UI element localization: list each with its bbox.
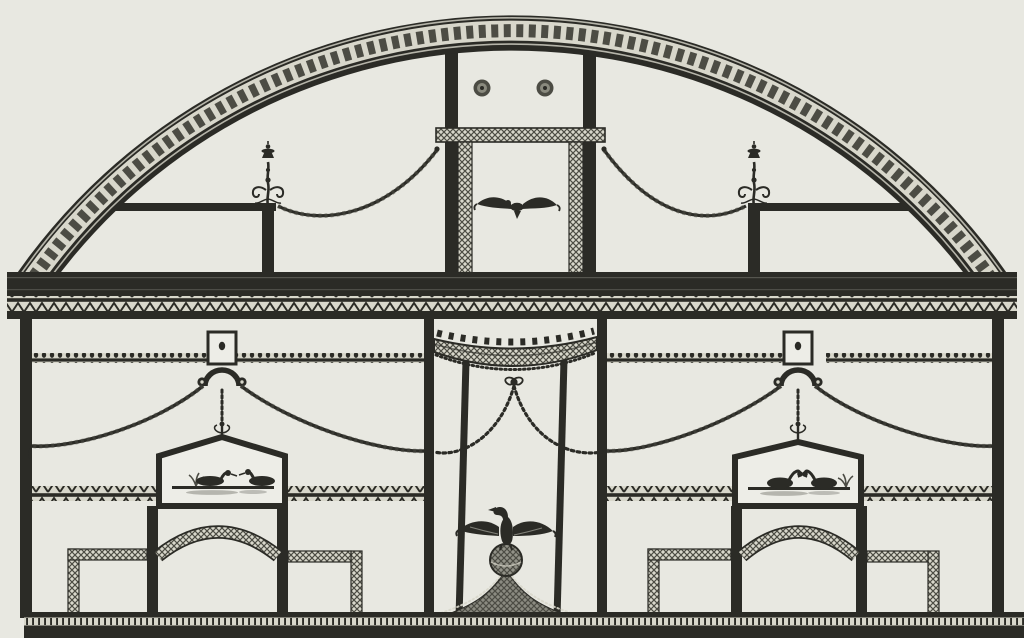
wall-right-edge-post <box>992 319 1004 618</box>
lunette-right-post <box>748 209 760 275</box>
plinth-bead-course <box>24 617 1024 628</box>
lunette-right-rail <box>748 203 912 211</box>
left-panel-right-post <box>277 506 288 618</box>
wall-left-edge-post <box>20 319 32 618</box>
lunette-left-post <box>262 209 274 275</box>
engraving-plate <box>0 0 1024 638</box>
globe <box>490 544 522 576</box>
aedicula-left-post <box>424 319 434 618</box>
plinth-base-line <box>24 612 1024 617</box>
duck-panel <box>159 437 285 506</box>
right-panel-right-post <box>856 506 867 618</box>
right-panel-left-post <box>731 506 742 618</box>
lunette-left-rail <box>100 203 276 211</box>
aedicula-right-post <box>597 319 607 618</box>
wall-elevation-drawing <box>0 0 1024 638</box>
plinth <box>24 612 1024 638</box>
center-panel-right-post <box>583 50 596 274</box>
swan-panel <box>735 442 861 506</box>
entablature-zigzag-band <box>7 296 1017 311</box>
entablature <box>7 272 1017 319</box>
plinth-dark-band <box>24 628 1024 638</box>
entablature-fillet <box>7 311 1017 319</box>
guilloche-band <box>436 128 605 142</box>
left-panel-left-post <box>147 506 158 618</box>
center-panel-left-post <box>445 50 458 274</box>
entablature-fascia <box>7 272 1017 296</box>
